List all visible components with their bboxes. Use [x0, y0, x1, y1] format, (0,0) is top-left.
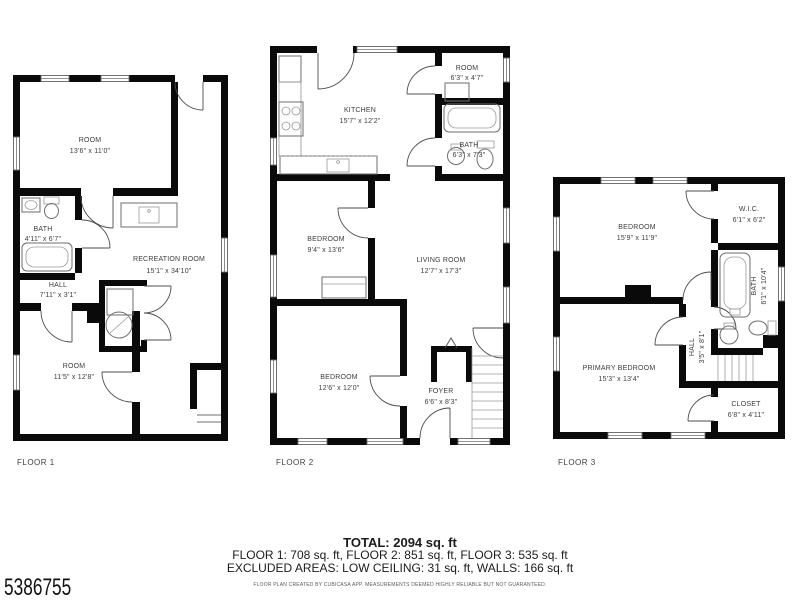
room-label: BEDROOM	[320, 374, 358, 381]
room-dims: 11'5" x 12'8"	[54, 374, 95, 381]
primary-door-arc	[655, 317, 683, 345]
room-label: BATH	[34, 226, 53, 233]
staircase	[472, 348, 503, 438]
floor2-plan: KITCHEN 15'7" x 12'2" ROOM 6'3" x 4'7" B…	[270, 46, 510, 445]
window	[271, 360, 277, 393]
window	[367, 439, 403, 445]
bottom-room-door-arc	[102, 372, 132, 402]
room-label: BATH	[751, 277, 758, 296]
bath-sink-fixture	[720, 323, 738, 344]
bath-door-arc	[82, 220, 110, 248]
room-dims: 6'1" x 10'4"	[761, 267, 768, 304]
room-dims: 15'1" x 34'10"	[146, 268, 191, 275]
floor2-room-labels: KITCHEN 15'7" x 12'2" ROOM 6'3" x 4'7" B…	[307, 65, 486, 406]
room-dims: 13'6" x 11'0"	[70, 148, 111, 155]
bath-door-arc	[714, 307, 736, 329]
kitchen-back-door-arc	[318, 53, 354, 89]
bathtub-fixture	[22, 243, 72, 271]
floor2-caption: FLOOR 2	[276, 458, 314, 467]
window	[608, 433, 642, 439]
utility-double-door-arc	[144, 286, 171, 340]
counter-sink-fixture	[121, 203, 177, 227]
room-dims: 9'4" x 13'6"	[308, 247, 345, 254]
room-dims: 4'11" x 6'7"	[25, 236, 62, 243]
window	[357, 47, 397, 53]
room-label: BATH	[460, 142, 479, 149]
room-label: BEDROOM	[307, 236, 345, 243]
landing-door-arc	[473, 328, 503, 358]
excluded-areas: EXCLUDED AREAS: LOW CEILING: 31 sq. ft, …	[0, 562, 800, 575]
furnace-fixture	[106, 289, 133, 338]
room-dims: 12'7" x 17'3"	[421, 268, 462, 275]
room-dims: 15'7" x 12'2"	[340, 118, 381, 125]
entry-door-arc	[175, 82, 203, 110]
floor3-plan: BEDROOM 15'9" x 11'9" W.I.C. 6'1" x 6'2"…	[553, 177, 785, 439]
room-label: LIVING ROOM	[417, 257, 466, 264]
room-dims: 12'6" x 12'0"	[319, 385, 360, 392]
window	[653, 178, 687, 184]
room-label: HALL	[689, 338, 696, 356]
porch-steps	[197, 415, 221, 422]
window	[601, 178, 635, 184]
room-door-arc	[407, 66, 435, 94]
wic-door-arc	[686, 191, 714, 219]
window	[554, 337, 560, 371]
bath-door-arc	[407, 138, 435, 166]
room-dims: 15'9" x 11'9"	[617, 235, 658, 242]
window	[14, 355, 20, 390]
window	[271, 255, 277, 297]
bedroom2-door-arc	[370, 376, 400, 406]
room-label: RECREATION ROOM	[133, 256, 205, 263]
floor2-windows	[271, 47, 510, 445]
room-label: PRIMARY BEDROOM	[583, 365, 656, 372]
window	[779, 267, 785, 301]
room-dims: 15'3" x 13'4"	[599, 376, 640, 383]
window	[554, 217, 560, 251]
window	[14, 137, 20, 170]
room-label: FOYER	[428, 388, 453, 395]
toilet-fixture	[44, 197, 59, 219]
floor1-plan: ROOM 13'6" x 11'0" BATH 4'11" x 6'7" REC…	[13, 75, 228, 441]
fridge-fixture	[279, 56, 301, 82]
floor3-caption: FLOOR 3	[558, 458, 596, 467]
hall-door-arc	[41, 311, 72, 342]
room-label: BEDROOM	[618, 224, 656, 231]
floor2-walls	[270, 46, 510, 445]
room-dims: 6'3" x 4'7"	[451, 75, 484, 82]
room-label: W.I.C.	[739, 206, 759, 213]
stove-fixture	[279, 102, 303, 136]
room-label: ROOM	[456, 65, 479, 72]
window	[101, 76, 129, 82]
entry-door-arc	[420, 408, 450, 438]
floor1-caption: FLOOR 1	[17, 458, 55, 467]
kitchen-sink-fixture	[280, 156, 377, 174]
staircase	[718, 355, 753, 381]
room-label: HALL	[49, 282, 67, 289]
room-dims: 7'11" x 3'1"	[40, 292, 77, 299]
bedroom-closet	[322, 277, 366, 298]
floor1-room-labels: ROOM 13'6" x 11'0" BATH 4'11" x 6'7" REC…	[25, 137, 205, 381]
disclaimer-text: FLOOR PLAN CREATED BY CUBICASA APP. MEAS…	[0, 582, 800, 588]
bathtub-fixture	[444, 104, 500, 132]
window	[671, 433, 705, 439]
room-label: CLOSET	[731, 401, 761, 408]
window	[504, 208, 510, 243]
room-dims: 6'8" x 4'11"	[728, 412, 765, 419]
bathtub-fixture	[720, 253, 750, 317]
bedroom-door-arc	[683, 272, 711, 300]
bath-sink-fixture	[22, 198, 40, 212]
window	[41, 76, 69, 82]
area-summary: TOTAL: 2094 sq. ft FLOOR 1: 708 sq. ft, …	[0, 536, 800, 588]
room-label: ROOM	[79, 137, 102, 144]
window	[504, 58, 510, 82]
window	[222, 238, 228, 272]
room-label: ROOM	[63, 363, 86, 370]
window	[504, 287, 510, 323]
room-dims: 6'1" x 6'2"	[733, 217, 766, 224]
window	[271, 138, 277, 165]
window	[298, 439, 327, 445]
listing-id: 5386755	[4, 574, 71, 602]
room-door-arc	[81, 196, 113, 228]
room-dims: 6'3" x 7'3"	[453, 152, 486, 159]
room-dims: 6'6" x 8'3"	[425, 399, 458, 406]
room-dims: 3'5" x 8'1"	[699, 330, 706, 363]
kitchen-counter	[279, 82, 301, 156]
toilet-fixture	[749, 321, 776, 335]
floor1-doors	[41, 82, 203, 402]
room-label: KITCHEN	[344, 107, 376, 114]
window	[458, 439, 490, 445]
bedroom1-door-arc	[338, 208, 368, 238]
closet-door-arc	[688, 395, 714, 421]
